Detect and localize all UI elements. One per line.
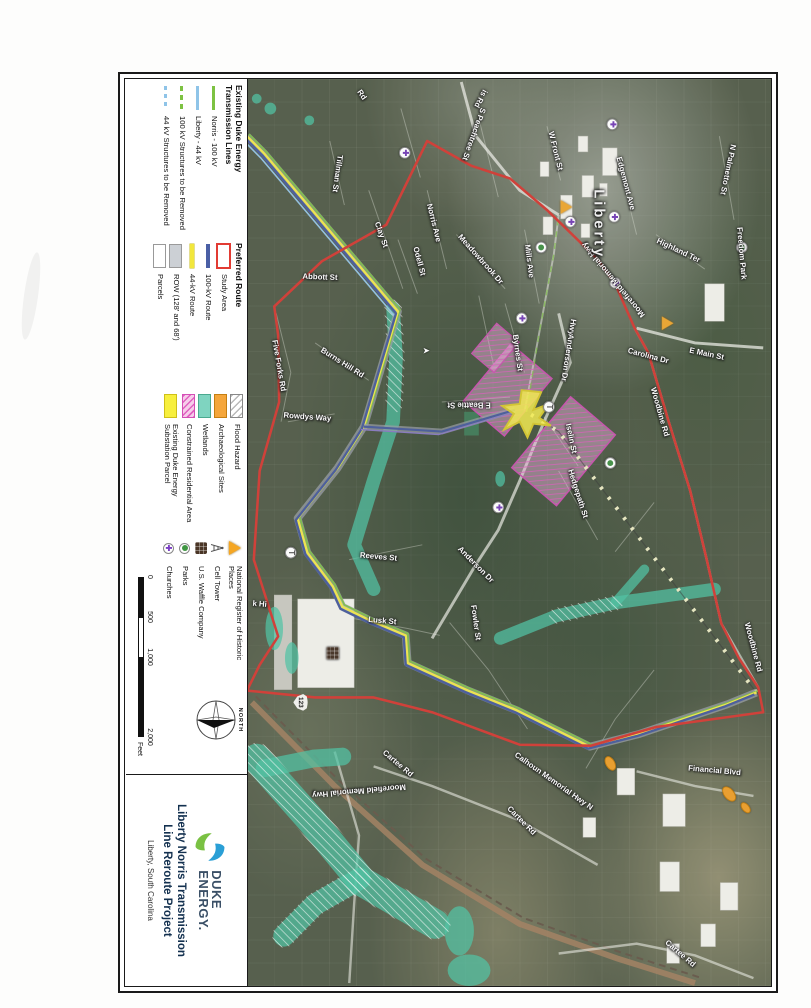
legend-section-header: Preferred Route — [233, 243, 243, 387]
project-location: Liberty, South Carolina — [146, 840, 155, 921]
legend-item-label: Wetlands — [200, 424, 208, 456]
legend-item-label: 44 kV Structures to be Removed — [162, 116, 170, 226]
flow-arrow-icon: ➤ — [423, 345, 430, 356]
legend-item: Norris - 100 kV — [207, 85, 220, 237]
tower-icon — [210, 535, 223, 561]
legend-item-label: 100 kV Structures to be Removed — [178, 116, 186, 230]
legend-item: U.S. Waffle Company — [194, 535, 207, 681]
legend-section-1: Existing Duke Energy Transmission LinesN… — [130, 85, 243, 243]
legend-item-label: Churches — [165, 566, 173, 599]
legend-item-label: Archaeological Sites — [216, 424, 224, 493]
legend-item-label: Liberty - 44 kV — [194, 116, 202, 165]
legend-item-label: Existing Duke Energy Substation Parcel — [162, 424, 179, 529]
legend-item: ROW (128' and 68') — [169, 243, 182, 387]
waffle-icon — [194, 535, 207, 561]
legend-item-label: 100-kV Route — [204, 274, 212, 320]
cell-tower-icon: T — [543, 401, 555, 413]
legend-item: Wetlands — [198, 393, 211, 529]
legend-section-2: Preferred RouteStudy Area100-kV Route44-… — [130, 243, 243, 393]
legend-item-label: Cell Tower — [213, 566, 221, 601]
legend-swatch — [169, 243, 182, 269]
legend-swatch — [198, 393, 211, 419]
church-icon: ✚ — [606, 118, 618, 130]
scale-bar: 05001,0002,000 Feet — [131, 577, 153, 765]
park-icon — [535, 241, 547, 253]
legend-item: Existing Duke Energy Substation Parcel — [162, 393, 179, 529]
north-label: NORTH — [237, 708, 243, 733]
church-icon: ✚ — [565, 216, 577, 228]
legend-swatch — [164, 393, 177, 419]
scan-smudge — [18, 251, 44, 340]
project-title: Liberty Norris Transmission Line Reroute… — [160, 804, 189, 957]
legend-swatch — [159, 85, 172, 111]
map-frame: ✚✚✚✚✚✚✚TT123➤ Rdis RdTillman StClay StS … — [124, 78, 772, 987]
legend-swatch — [230, 393, 243, 419]
legend-item: 100 kV Structures to be Removed — [175, 85, 188, 237]
us-waffle-company-icon — [326, 647, 339, 660]
legend-item: Liberty - 44 kV — [191, 85, 204, 237]
brand-name: DUKE ENERGY. — [197, 870, 223, 931]
legend-item-label: Flood Hazard — [232, 424, 240, 470]
duke-energy-logo-icon — [193, 830, 227, 864]
legend-strip: Existing Duke Energy Transmission LinesN… — [126, 79, 247, 986]
street-label: Abbott St — [302, 272, 337, 282]
north-arrow: NORTH — [192, 695, 244, 745]
church-icon: ✚ — [608, 211, 620, 223]
church-icon: ✚ — [162, 535, 175, 561]
legend-swatch — [175, 85, 188, 111]
legend-swatch — [185, 243, 198, 269]
historic-place-icon — [662, 316, 674, 330]
park-icon — [178, 535, 191, 561]
legend-item-label: U.S. Waffle Company — [197, 566, 205, 639]
street-label: E Beattie St — [447, 401, 490, 410]
brand-row: DUKE ENERGY. — [193, 830, 227, 931]
legend-item: National Register of Historic Places — [226, 535, 243, 681]
legend-item-label: National Register of Historic Places — [226, 566, 243, 681]
legend-swatch — [191, 85, 204, 111]
legend-item: Cell Tower — [210, 535, 223, 681]
legend-section-3: Flood HazardArchaeological SitesWetlands… — [130, 393, 243, 535]
map-document: ✚✚✚✚✚✚✚TT123➤ Rdis RdTillman StClay StS … — [118, 72, 778, 993]
legend-swatch — [207, 85, 220, 111]
scale-tick: 2,000 — [146, 728, 153, 746]
legend-item: Study Area — [217, 243, 230, 387]
legend-item: 44 kV Structures to be Removed — [159, 85, 172, 237]
legend-item: 100-kV Route — [201, 243, 214, 387]
scanned-map-page: ✚✚✚✚✚✚✚TT123➤ Rdis RdTillman StClay StS … — [0, 0, 811, 1008]
legend-item: 44-kV Route — [185, 243, 198, 387]
legend-swatch — [214, 393, 227, 419]
legend-item-label: Parks — [181, 566, 189, 585]
legend-item-label: Norris - 100 kV — [210, 116, 218, 167]
legend-swatch — [153, 243, 166, 269]
legend-swatch — [217, 243, 230, 269]
park-icon — [604, 457, 616, 469]
scale-unit: Feet — [136, 742, 143, 756]
scale-tick: 1,000 — [146, 648, 153, 666]
scale-tick: 500 — [146, 611, 153, 623]
map-area: ✚✚✚✚✚✚✚TT123➤ Rdis RdTillman StClay StS … — [247, 79, 771, 986]
street-label: k Hi — [252, 599, 267, 609]
legend-item-label: ROW (128' and 68') — [172, 274, 180, 341]
legend-swatch — [182, 393, 195, 419]
legend-item: Flood Hazard — [230, 393, 243, 529]
legend-item-label: Parcels — [156, 274, 164, 299]
city-label: Liberty — [591, 189, 608, 259]
legend-item: Parks — [178, 535, 191, 681]
map-feature-layers — [247, 79, 771, 986]
legend-item: ✚Churches — [162, 535, 175, 681]
cell-tower-icon: T — [285, 547, 297, 559]
legend-item: Constrained Residential Area — [182, 393, 195, 529]
legend-item-label: Study Area — [220, 274, 228, 311]
triangle-icon — [228, 535, 241, 561]
scale-tick: 0 — [146, 575, 153, 579]
title-block: DUKE ENERGY. Liberty Norris Transmission… — [126, 774, 247, 986]
legend-section-header: Existing Duke Energy Transmission Lines — [223, 85, 243, 237]
legend-item-label: 44-kV Route — [188, 274, 196, 316]
legend-item: Archaeological Sites — [214, 393, 227, 529]
legend-item: Parcels — [153, 243, 166, 387]
church-icon: ✚ — [516, 312, 528, 324]
church-icon: ✚ — [492, 501, 504, 513]
legend-swatch — [201, 243, 214, 269]
legend-item-label: Constrained Residential Area — [184, 424, 192, 522]
church-icon: ✚ — [399, 147, 411, 159]
historic-place-icon — [561, 200, 573, 214]
